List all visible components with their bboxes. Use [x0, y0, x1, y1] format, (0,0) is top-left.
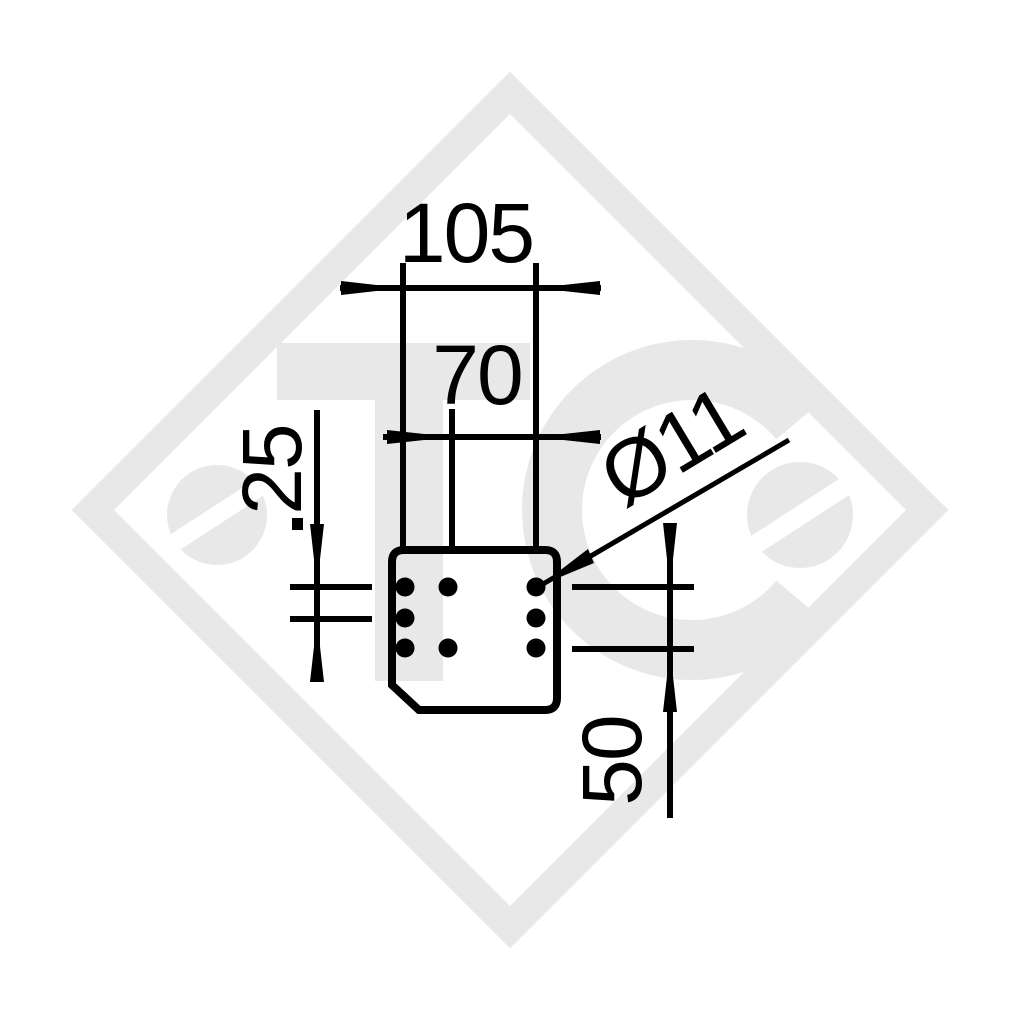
dimension-105: [340, 281, 601, 295]
hole: [439, 578, 458, 597]
technical-drawing: 105 70 25 50 Ø11: [0, 0, 1024, 1024]
drawing-canvas: [0, 0, 1024, 1024]
watermark-letter-e-right: [742, 462, 858, 568]
hole: [396, 609, 415, 628]
hole: [396, 578, 415, 597]
hole: [396, 639, 415, 658]
arrow-25-bottom: [310, 620, 324, 682]
dim-label-row-spacing: 25: [230, 425, 314, 514]
arrow-50-top: [663, 523, 677, 586]
arrow-25-top: [310, 524, 324, 586]
dim-label-width-inner: 70: [432, 333, 521, 417]
hole: [527, 609, 546, 628]
hole: [527, 639, 546, 658]
arrow-105-right: [536, 281, 600, 295]
hole: [439, 639, 458, 658]
dim-label-row-span: 50: [570, 716, 654, 805]
arrow-105-left: [341, 281, 403, 295]
stray-dot: [292, 518, 303, 530]
hole: [527, 578, 546, 597]
dim-label-width-outer: 105: [399, 191, 533, 275]
